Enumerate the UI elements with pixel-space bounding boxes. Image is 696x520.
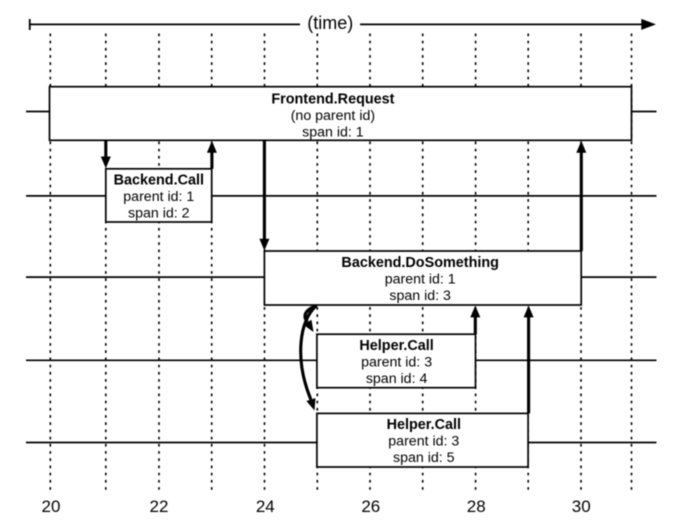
svg-text:30: 30 <box>572 497 591 516</box>
svg-text:26: 26 <box>361 497 380 516</box>
svg-text:Helper.Call: Helper.Call <box>359 338 433 354</box>
svg-text:Backend.Call: Backend.Call <box>114 172 204 188</box>
svg-text:(time): (time) <box>307 13 353 33</box>
svg-text:parent id: 1: parent id: 1 <box>123 189 194 205</box>
svg-text:parent id: 3: parent id: 3 <box>361 354 432 370</box>
svg-text:20: 20 <box>42 497 61 516</box>
svg-text:span id: 4: span id: 4 <box>366 371 428 387</box>
svg-text:span id: 1: span id: 1 <box>302 124 364 140</box>
svg-text:span id: 5: span id: 5 <box>393 450 455 466</box>
svg-text:parent id: 1: parent id: 1 <box>385 271 456 287</box>
svg-text:22: 22 <box>150 497 169 516</box>
svg-text:span id: 3: span id: 3 <box>389 288 451 304</box>
svg-text:24: 24 <box>256 497 275 516</box>
svg-text:Frontend.Request: Frontend.Request <box>271 91 394 107</box>
svg-text:parent id: 3: parent id: 3 <box>388 434 459 450</box>
svg-text:28: 28 <box>467 497 486 516</box>
svg-text:span id: 2: span id: 2 <box>128 205 190 221</box>
svg-text:(no parent id): (no parent id) <box>291 108 375 124</box>
svg-text:Helper.Call: Helper.Call <box>387 417 461 433</box>
svg-text:Backend.DoSomething: Backend.DoSomething <box>341 255 499 271</box>
